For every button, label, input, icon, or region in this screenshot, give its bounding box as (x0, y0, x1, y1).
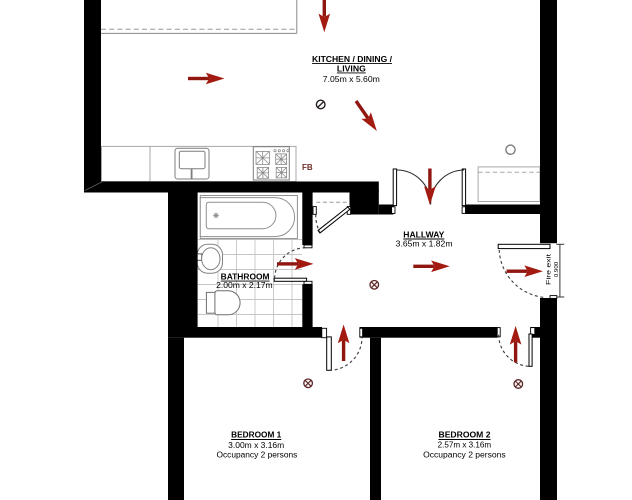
svg-text:7.05m x 5.60m: 7.05m x 5.60m (323, 75, 380, 84)
svg-text:BEDROOM 1: BEDROOM 1 (231, 431, 282, 440)
svg-text:Occupancy 2 persons: Occupancy 2 persons (423, 450, 506, 459)
svg-text:3.65m x 1.82m: 3.65m x 1.82m (396, 240, 453, 249)
svg-text:Occupancy 2 persons: Occupancy 2 persons (217, 451, 298, 460)
svg-text:FB: FB (302, 163, 313, 172)
svg-text:0.900: 0.900 (554, 262, 560, 278)
svg-text:LIVING: LIVING (337, 64, 366, 73)
svg-text:2.00m x 2.17m: 2.00m x 2.17m (216, 281, 273, 290)
svg-text:HALLWAY: HALLWAY (403, 230, 445, 239)
svg-text:3.00m x 3.16m: 3.00m x 3.16m (228, 441, 284, 450)
svg-text:2.57m x 3.16m: 2.57m x 3.16m (438, 441, 492, 450)
svg-text:BEDROOM 2: BEDROOM 2 (439, 431, 492, 440)
svg-text:KITCHEN / DINING /: KITCHEN / DINING / (312, 55, 393, 64)
svg-text:Fire exit: Fire exit (545, 254, 552, 285)
